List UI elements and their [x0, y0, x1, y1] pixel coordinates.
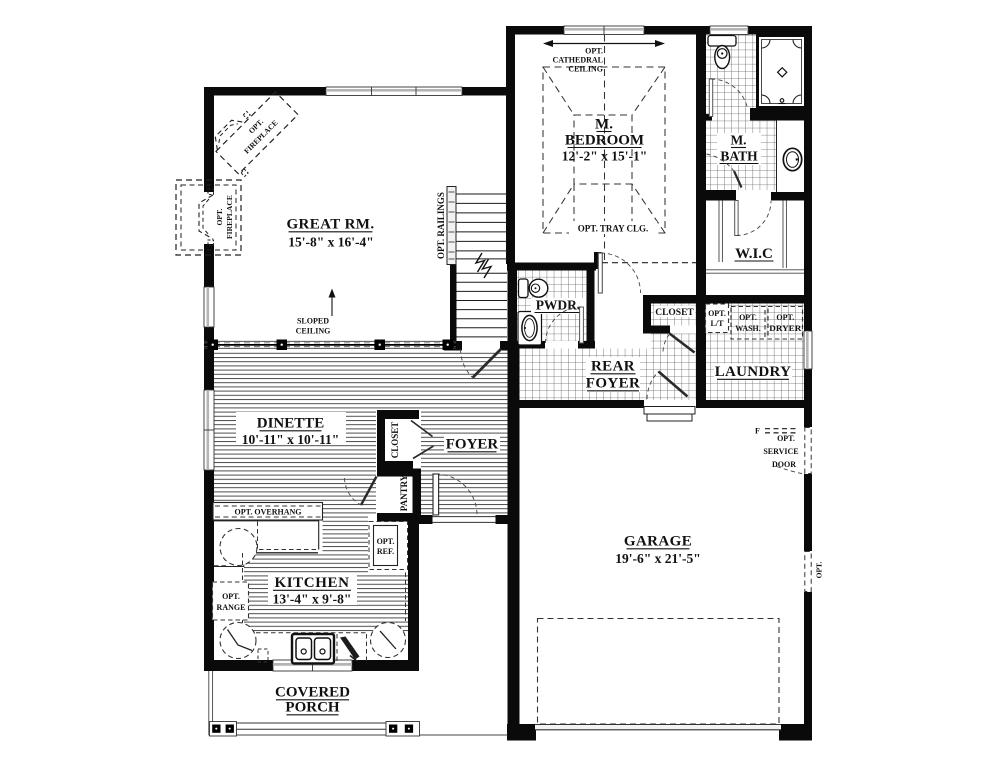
svg-text:DINETTE: DINETTE — [257, 416, 325, 432]
svg-text:CLOSET: CLOSET — [655, 308, 694, 318]
svg-text:13'-4" x 9'-8": 13'-4" x 9'-8" — [273, 592, 352, 607]
svg-text:15'-8" x 16'-4": 15'-8" x 16'-4" — [288, 235, 373, 250]
svg-text:OPT.: OPT. — [585, 47, 603, 56]
svg-text:FIREPLACE: FIREPLACE — [225, 195, 234, 239]
svg-text:OPT.: OPT. — [739, 313, 757, 322]
svg-text:BEDROOM: BEDROOM — [565, 133, 644, 149]
svg-text:LAUNDRY: LAUNDRY — [715, 364, 792, 380]
svg-text:12'-2" x 15'-1": 12'-2" x 15'-1" — [562, 149, 647, 164]
svg-text:WASH.: WASH. — [735, 324, 761, 333]
svg-text:PORCH: PORCH — [285, 700, 339, 716]
svg-text:GARAGE: GARAGE — [624, 534, 692, 550]
svg-text:SLOPED: SLOPED — [297, 317, 329, 326]
svg-text:M.: M. — [595, 117, 613, 133]
svg-text:M.: M. — [730, 133, 746, 148]
svg-text:FOYER: FOYER — [586, 376, 641, 392]
svg-text:COVERED: COVERED — [275, 685, 350, 701]
svg-text:W.I.C: W.I.C — [735, 246, 773, 262]
svg-text:OPT. RAILINGS: OPT. RAILINGS — [436, 192, 446, 259]
svg-text:BATH: BATH — [720, 149, 758, 164]
svg-text:CATHEDRAL: CATHEDRAL — [552, 56, 603, 65]
svg-text:OPT.: OPT. — [215, 208, 224, 225]
svg-text:L/T: L/T — [711, 319, 725, 328]
svg-text:CEILING: CEILING — [568, 65, 603, 74]
svg-text:FOYER: FOYER — [446, 437, 499, 453]
svg-text:DRYER: DRYER — [769, 324, 801, 333]
svg-text:OPT.: OPT. — [777, 434, 795, 443]
svg-text:PANTRY: PANTRY — [399, 474, 409, 511]
svg-text:19'-6" x 21'-5": 19'-6" x 21'-5" — [615, 551, 700, 566]
svg-text:KITCHEN: KITCHEN — [274, 575, 349, 591]
svg-text:OPT.: OPT. — [708, 309, 726, 318]
svg-text:OPT. TRAY CLG.: OPT. TRAY CLG. — [578, 224, 649, 234]
svg-text:DOOR: DOOR — [772, 460, 796, 469]
svg-text:GREAT RM.: GREAT RM. — [286, 217, 374, 233]
svg-text:CLOSET: CLOSET — [390, 422, 400, 459]
svg-text:10'-11" x 10'-11": 10'-11" x 10'-11" — [242, 432, 340, 447]
svg-text:RANGE: RANGE — [217, 603, 246, 612]
svg-text:OPT.: OPT. — [815, 562, 824, 579]
svg-text:REAR: REAR — [591, 359, 635, 375]
svg-text:PWDR.: PWDR. — [536, 298, 581, 313]
svg-text:F: F — [755, 427, 760, 436]
svg-text:OPT. OVERHANG: OPT. OVERHANG — [235, 508, 302, 517]
svg-text:REF.: REF. — [377, 547, 394, 556]
svg-text:OPT.: OPT. — [222, 592, 240, 601]
svg-text:SERVICE: SERVICE — [763, 447, 798, 456]
svg-text:OPT.: OPT. — [776, 313, 794, 322]
svg-text:CEILING: CEILING — [296, 327, 331, 336]
svg-text:OPT.: OPT. — [377, 537, 395, 546]
